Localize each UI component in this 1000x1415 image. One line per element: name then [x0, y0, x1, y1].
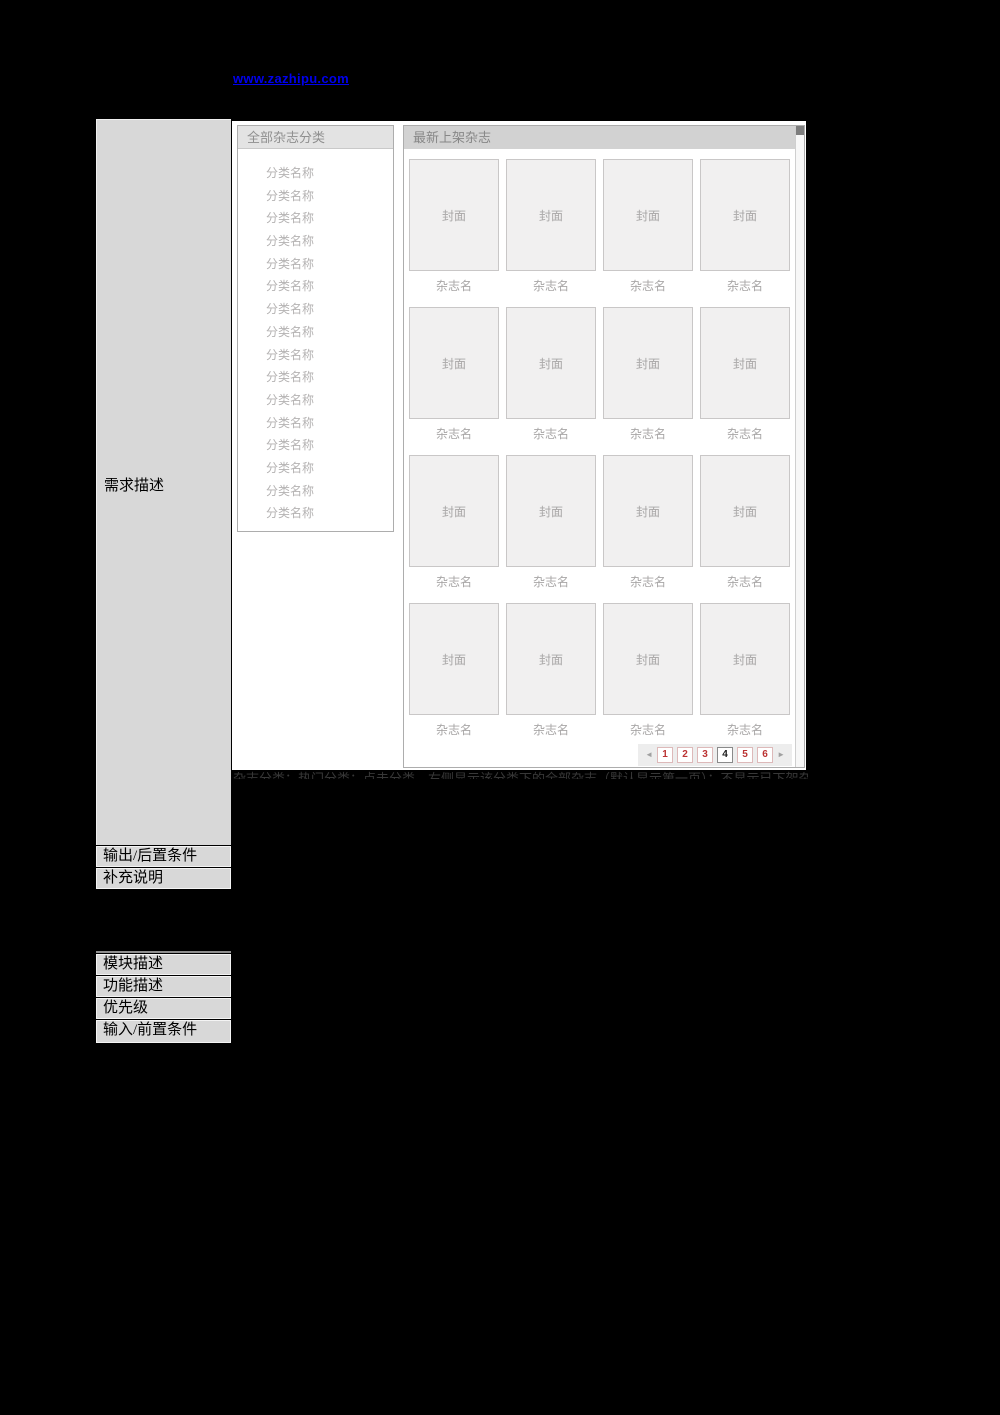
category-item[interactable]: 分类名称	[266, 457, 393, 480]
category-item[interactable]: 分类名称	[266, 412, 393, 435]
magazine-row: 封面 杂志名 封面 杂志名 封面 杂志名 封面 杂志名	[409, 307, 790, 441]
magazine-cover[interactable]: 封面	[409, 159, 499, 271]
magazine-cover[interactable]: 封面	[700, 603, 790, 715]
magazine-card[interactable]: 封面 杂志名	[409, 455, 499, 589]
magazine-cover[interactable]: 封面	[603, 159, 693, 271]
magazine-card[interactable]: 封面 杂志名	[700, 307, 790, 441]
magazine-card[interactable]: 封面 杂志名	[700, 603, 790, 737]
category-item[interactable]: 分类名称	[266, 502, 393, 525]
page-button-1[interactable]: 1	[657, 747, 673, 763]
magazine-name: 杂志名	[700, 425, 790, 441]
magazine-name: 杂志名	[700, 573, 790, 589]
magazine-card[interactable]: 封面 杂志名	[409, 159, 499, 293]
page-button-3[interactable]: 3	[697, 747, 713, 763]
page-button-6[interactable]: 6	[757, 747, 773, 763]
magazine-cover[interactable]: 封面	[506, 603, 596, 715]
page-button-5[interactable]: 5	[737, 747, 753, 763]
magazine-cover[interactable]: 封面	[700, 307, 790, 419]
next-page-icon[interactable]: ►	[777, 748, 785, 762]
category-item[interactable]: 分类名称	[266, 366, 393, 389]
newest-magazines-title: 最新上架杂志	[404, 126, 795, 149]
magazine-cover[interactable]: 封面	[506, 307, 596, 419]
category-item[interactable]: 分类名称	[266, 185, 393, 208]
magazine-name: 杂志名	[409, 425, 499, 441]
magazine-card[interactable]: 封面 杂志名	[506, 307, 596, 441]
conditions-table: 输出/后置条件 补充说明	[96, 846, 231, 890]
magazine-card[interactable]: 封面 杂志名	[506, 455, 596, 589]
magazine-name: 杂志名	[506, 721, 596, 737]
magazine-name: 杂志名	[506, 425, 596, 441]
magazine-card[interactable]: 封面 杂志名	[506, 159, 596, 293]
site-link[interactable]: www.zazhipu.com	[233, 71, 349, 86]
magazine-name: 杂志名	[506, 277, 596, 293]
category-item[interactable]: 分类名称	[266, 162, 393, 185]
category-panel: 全部杂志分类 分类名称 分类名称 分类名称 分类名称 分类名称 分类名称 分类名…	[237, 125, 394, 532]
magazine-grid: 封面 杂志名 封面 杂志名 封面 杂志名 封面 杂志名 封面	[409, 159, 790, 751]
category-item[interactable]: 分类名称	[266, 275, 393, 298]
page-button-4-current[interactable]: 4	[717, 747, 733, 763]
module-table: 模块描述 功能描述 优先级 输入/前置条件	[96, 951, 231, 1044]
magazine-name: 杂志名	[506, 573, 596, 589]
module-table-top-border	[96, 951, 231, 953]
newest-magazines-panel: 最新上架杂志 封面 杂志名 封面 杂志名 封面 杂志名 封面 杂志名	[403, 125, 805, 768]
magazine-name: 杂志名	[409, 277, 499, 293]
requirement-note-text: 杂志分类：热门分类；点击分类，右侧显示该分类下的全部杂志（默认显示第一页）；不显…	[233, 771, 808, 779]
input-precondition-row: 输入/前置条件	[96, 1020, 231, 1043]
supplementary-notes-row: 补充说明	[96, 868, 231, 889]
magazine-card[interactable]: 封面 杂志名	[409, 307, 499, 441]
magazine-card[interactable]: 封面 杂志名	[506, 603, 596, 737]
page-button-2[interactable]: 2	[677, 747, 693, 763]
magazine-row: 封面 杂志名 封面 杂志名 封面 杂志名 封面 杂志名	[409, 603, 790, 737]
priority-row: 优先级	[96, 998, 231, 1019]
category-panel-title: 全部杂志分类	[238, 126, 393, 149]
pagination: ◄ 1 2 3 4 5 6 ►	[638, 744, 792, 766]
output-postcondition-row: 输出/后置条件	[96, 846, 231, 867]
magazine-name: 杂志名	[700, 721, 790, 737]
scrollbar-thumb[interactable]	[796, 126, 804, 135]
magazine-cover[interactable]: 封面	[603, 603, 693, 715]
category-item[interactable]: 分类名称	[266, 389, 393, 412]
prev-page-icon[interactable]: ◄	[645, 748, 653, 762]
magazine-cover[interactable]: 封面	[700, 159, 790, 271]
module-description-row: 模块描述	[96, 954, 231, 975]
magazine-cover[interactable]: 封面	[409, 455, 499, 567]
magazine-cover[interactable]: 封面	[506, 455, 596, 567]
magazine-cover[interactable]: 封面	[409, 307, 499, 419]
magazine-cover[interactable]: 封面	[506, 159, 596, 271]
magazine-card[interactable]: 封面 杂志名	[603, 159, 693, 293]
category-list: 分类名称 分类名称 分类名称 分类名称 分类名称 分类名称 分类名称 分类名称 …	[238, 149, 393, 525]
magazine-cover[interactable]: 封面	[603, 455, 693, 567]
magazine-name: 杂志名	[603, 277, 693, 293]
magazine-card[interactable]: 封面 杂志名	[700, 455, 790, 589]
magazine-card[interactable]: 封面 杂志名	[603, 307, 693, 441]
magazine-name: 杂志名	[603, 425, 693, 441]
category-item[interactable]: 分类名称	[266, 434, 393, 457]
scrollbar[interactable]	[795, 126, 804, 767]
category-item[interactable]: 分类名称	[266, 298, 393, 321]
category-item[interactable]: 分类名称	[266, 344, 393, 367]
magazine-row: 封面 杂志名 封面 杂志名 封面 杂志名 封面 杂志名	[409, 159, 790, 293]
wireframe-image: 全部杂志分类 分类名称 分类名称 分类名称 分类名称 分类名称 分类名称 分类名…	[232, 121, 806, 770]
magazine-card[interactable]: 封面 杂志名	[700, 159, 790, 293]
magazine-name: 杂志名	[700, 277, 790, 293]
category-item[interactable]: 分类名称	[266, 207, 393, 230]
category-item[interactable]: 分类名称	[266, 321, 393, 344]
magazine-cover[interactable]: 封面	[409, 603, 499, 715]
category-item[interactable]: 分类名称	[266, 480, 393, 503]
magazine-name: 杂志名	[409, 573, 499, 589]
magazine-card[interactable]: 封面 杂志名	[603, 455, 693, 589]
category-item[interactable]: 分类名称	[266, 253, 393, 276]
function-description-row: 功能描述	[96, 976, 231, 997]
magazine-name: 杂志名	[603, 721, 693, 737]
magazine-name: 杂志名	[409, 721, 499, 737]
magazine-card[interactable]: 封面 杂志名	[409, 603, 499, 737]
requirement-description-label: 需求描述	[104, 474, 164, 495]
magazine-name: 杂志名	[603, 573, 693, 589]
requirement-description-cell: 需求描述	[96, 119, 231, 845]
magazine-cover[interactable]: 封面	[603, 307, 693, 419]
category-item[interactable]: 分类名称	[266, 230, 393, 253]
magazine-card[interactable]: 封面 杂志名	[603, 603, 693, 737]
magazine-row: 封面 杂志名 封面 杂志名 封面 杂志名 封面 杂志名	[409, 455, 790, 589]
magazine-cover[interactable]: 封面	[700, 455, 790, 567]
